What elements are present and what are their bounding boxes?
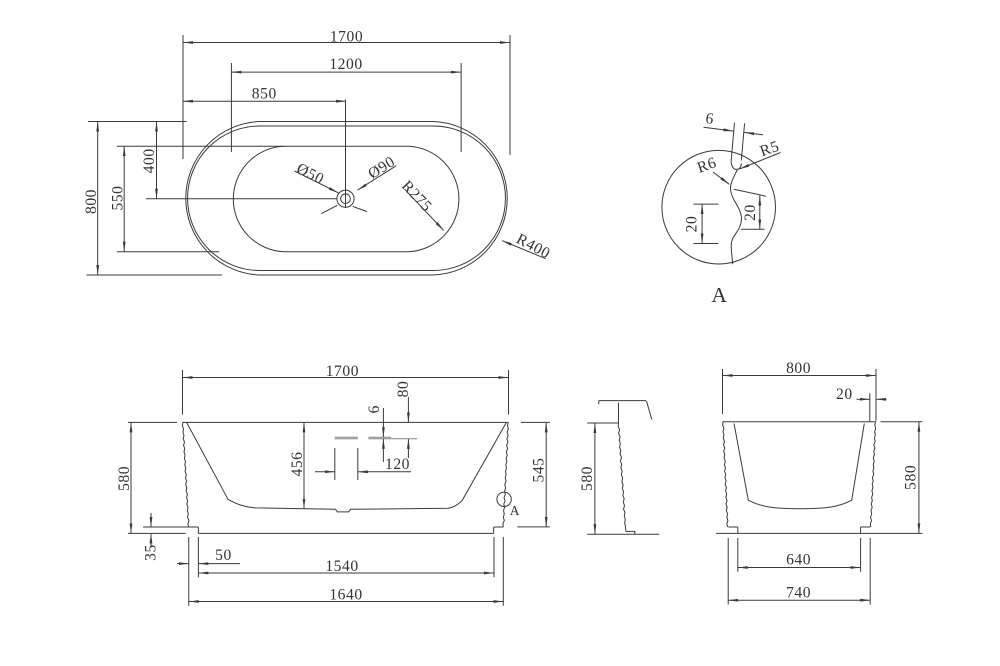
svg-text:20: 20 [684,216,701,233]
svg-text:550: 550 [109,185,126,210]
svg-text:800: 800 [83,189,100,214]
svg-text:580: 580 [579,466,596,491]
svg-text:580: 580 [903,465,920,490]
svg-text:6: 6 [366,405,383,413]
svg-text:580: 580 [116,466,133,491]
svg-text:545: 545 [531,457,548,482]
svg-text:Ø90: Ø90 [365,153,398,183]
svg-text:120: 120 [385,456,410,473]
svg-text:A: A [711,283,727,307]
svg-text:R5: R5 [758,138,782,160]
svg-text:50: 50 [215,547,232,564]
svg-text:800: 800 [786,360,811,377]
svg-text:R400: R400 [513,230,553,262]
svg-text:400: 400 [141,148,158,173]
svg-text:456: 456 [289,451,306,476]
svg-text:6: 6 [704,110,715,128]
svg-text:R275: R275 [398,177,435,215]
svg-text:1540: 1540 [325,558,358,575]
svg-text:740: 740 [786,584,811,601]
svg-text:20: 20 [742,204,759,221]
svg-text:1700: 1700 [330,29,363,46]
svg-text:80: 80 [395,381,412,398]
svg-text:35: 35 [143,544,160,561]
svg-text:A: A [510,503,520,518]
svg-text:640: 640 [786,552,811,569]
svg-text:1700: 1700 [326,363,359,380]
svg-text:20: 20 [836,386,853,403]
svg-text:850: 850 [252,86,277,103]
svg-text:1200: 1200 [329,56,362,73]
svg-text:Ø50: Ø50 [294,160,327,188]
svg-text:1640: 1640 [329,587,362,604]
